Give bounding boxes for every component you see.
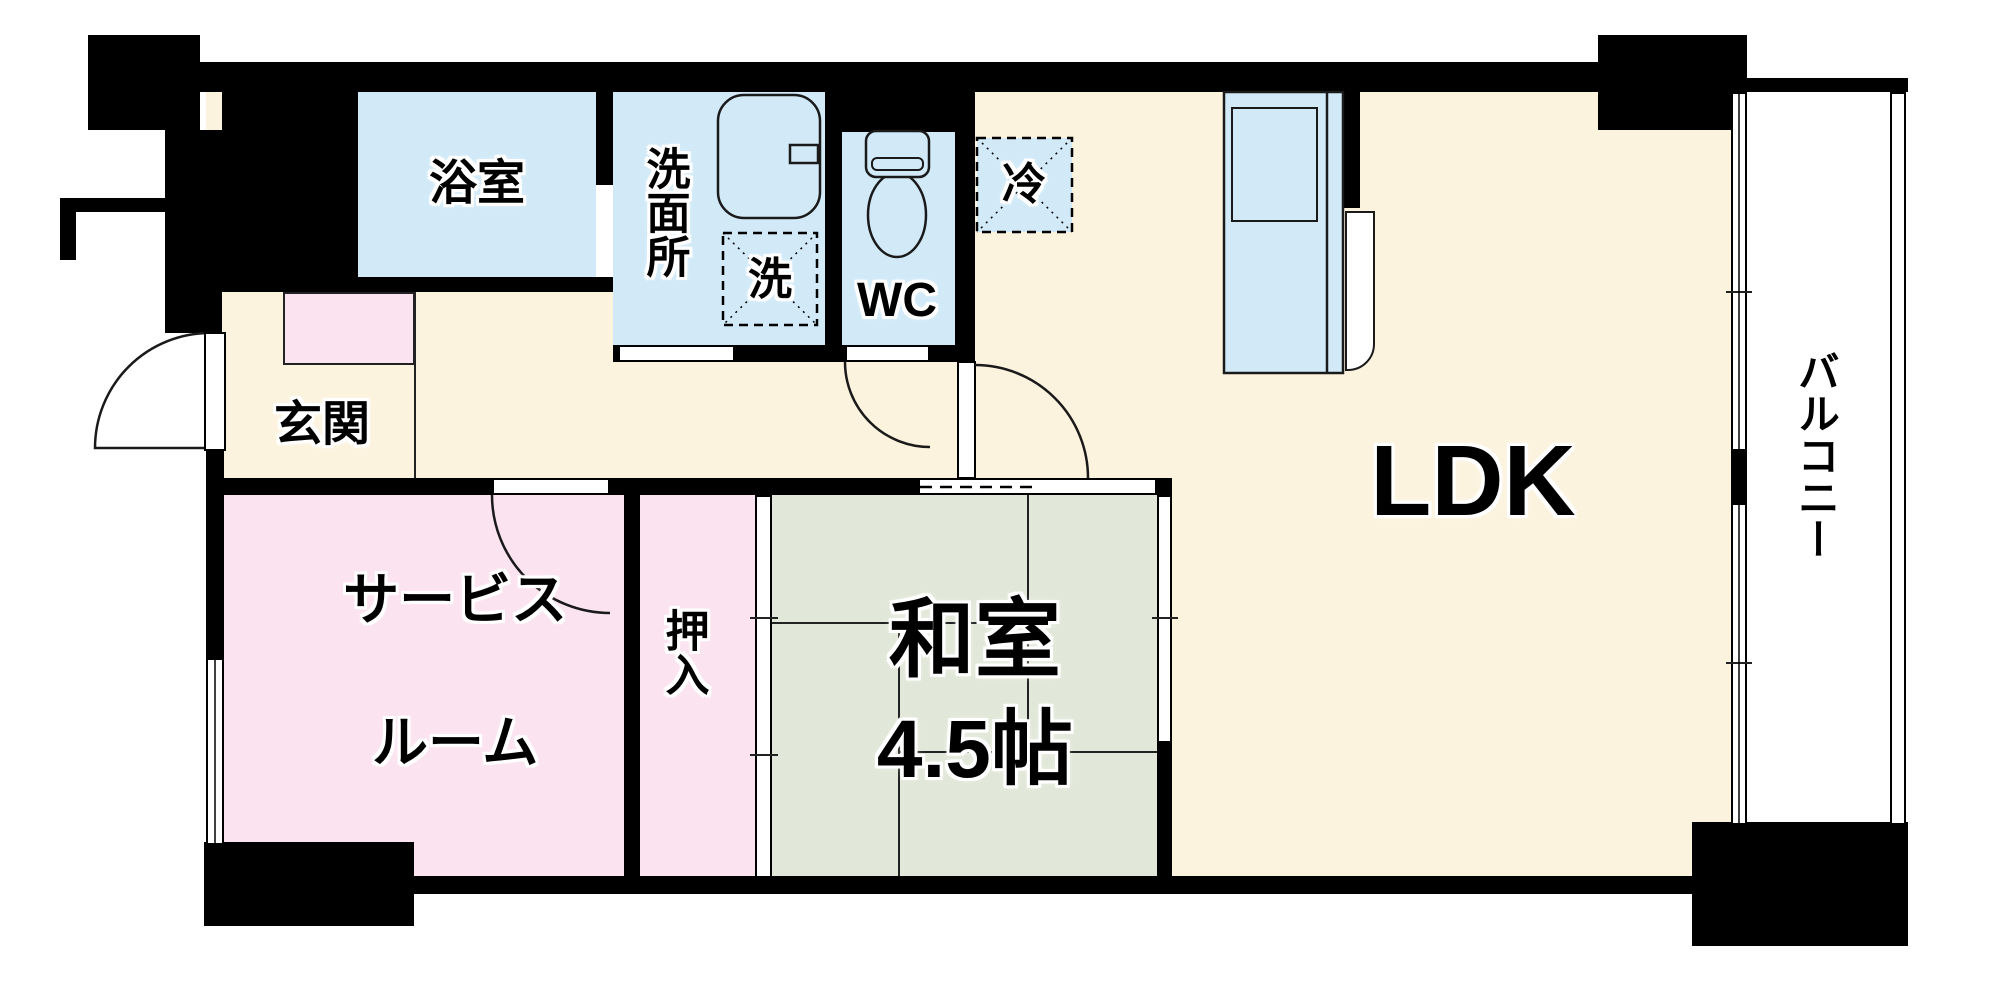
room-label-service: サービス ルーム	[281, 492, 567, 850]
kitchen-door-leaf	[1346, 212, 1374, 370]
toilet-icon	[866, 131, 929, 257]
room-label-wc: WC	[857, 275, 937, 327]
room-label-entrance: 玄関	[274, 399, 370, 451]
service-label-line1: サービス	[343, 567, 567, 630]
room-label-washitsu: 和室 4.5帖	[859, 575, 1073, 813]
room-label-balcony: バルコニー	[1793, 350, 1838, 560]
room-label-bathroom: 浴室	[429, 158, 525, 210]
wc-door-arc	[845, 362, 930, 447]
floor-plan: 浴室 洗面所 洗 WC 冷 玄関 サービス ルーム 押入 和室 4.5帖 LDK…	[0, 0, 1999, 985]
vanity-basin-icon	[718, 95, 820, 218]
washitsu-name: 和室	[889, 592, 1061, 688]
entry-door	[95, 333, 225, 450]
room-label-ldk: LDK	[1370, 427, 1576, 535]
washitsu-size: 4.5帖	[877, 704, 1073, 795]
service-label-line2: ルーム	[372, 711, 538, 774]
kitchen-counter	[1224, 92, 1343, 373]
room-label-refrigerator: 冷	[1002, 161, 1046, 209]
room-label-laundry: 洗	[748, 256, 792, 304]
ldk-door	[958, 362, 1088, 478]
room-label-closet: 押入	[659, 608, 707, 696]
room-label-washroom: 洗面所	[640, 146, 688, 278]
